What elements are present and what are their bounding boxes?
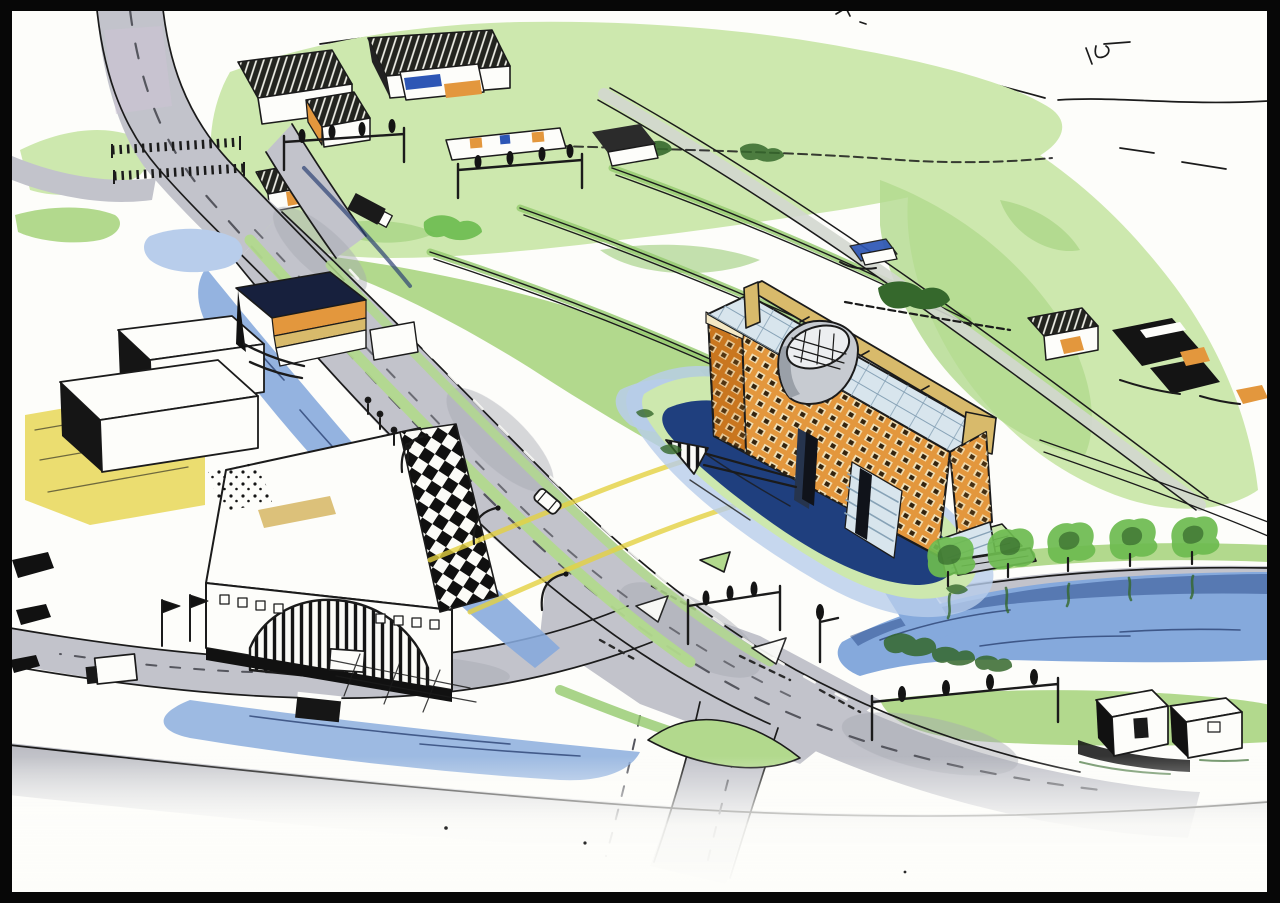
road-tint-patch — [104, 26, 172, 114]
sketch-image: hand-drawn aerial perspective site sketc… — [0, 0, 1280, 903]
scanned-sketch-page: hand-drawn aerial perspective site sketc… — [0, 0, 1280, 903]
sketch-fade-out — [12, 756, 1268, 893]
